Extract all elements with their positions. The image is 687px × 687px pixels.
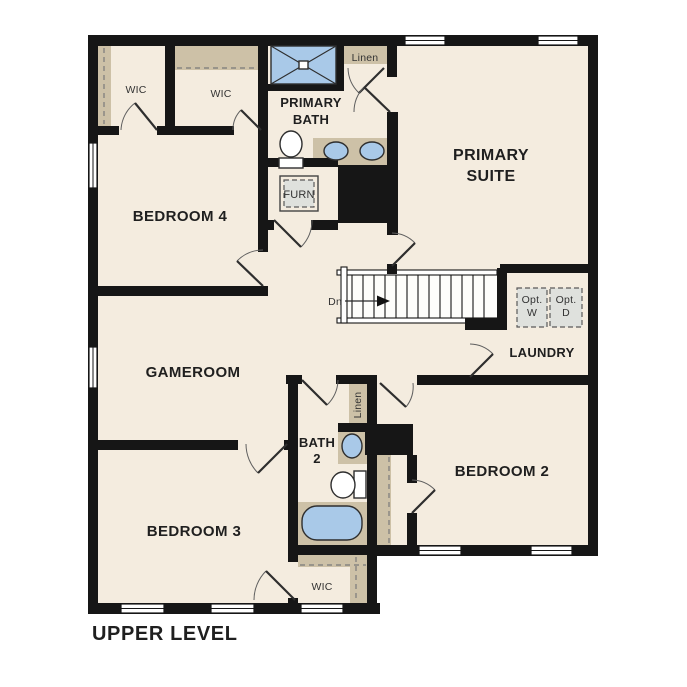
primary-bath-label-line1: PRIMARY <box>280 95 342 110</box>
opt-washer-label-line2: W <box>527 307 537 319</box>
shower-icon <box>271 46 336 84</box>
primary-suite-label-line1: PRIMARY <box>453 147 529 164</box>
wic-bedroom3-label: WIC <box>311 581 332 593</box>
stairs-down-label: Dn <box>328 296 342 308</box>
floor-plan-drawing: WIC WIC Linen PRIMARY BATH PRIMARY SUITE… <box>0 0 687 687</box>
sink-icon <box>360 142 384 160</box>
window <box>89 143 97 188</box>
sink-icon <box>342 434 362 458</box>
stair-newel <box>341 267 347 323</box>
gameroom-label: GAMEROOM <box>146 364 241 381</box>
toilet-icon <box>331 471 366 498</box>
chase-primary <box>338 165 390 223</box>
chase-bath2 <box>365 424 413 455</box>
floor-plan-upper-level: WIC WIC Linen PRIMARY BATH PRIMARY SUITE… <box>0 0 687 687</box>
window <box>301 604 343 613</box>
opt-dryer-label-line2: D <box>562 307 570 319</box>
plan-title: UPPER LEVEL <box>92 623 238 645</box>
window <box>419 546 461 555</box>
wic-left-label: WIC <box>125 84 146 96</box>
linen-bath2-label: Linen <box>352 392 364 419</box>
window <box>538 36 578 45</box>
wic-bedroom3-shelving-right <box>350 555 367 603</box>
bath2-label-line1: BATH <box>299 435 335 450</box>
sink-icon <box>324 142 348 160</box>
window <box>89 347 97 388</box>
wic-bedroom4-shelving <box>175 46 258 70</box>
window <box>121 604 164 613</box>
linen-primary-label: Linen <box>352 52 379 64</box>
bedroom4-label: BEDROOM 4 <box>133 208 228 225</box>
primary-bath-label-line2: BATH <box>293 112 329 127</box>
bath2-label-line2: 2 <box>313 451 321 466</box>
stair-rail-top <box>337 270 497 275</box>
bathtub-icon <box>302 506 362 540</box>
bedroom3-label: BEDROOM 3 <box>147 523 241 540</box>
laundry-label: LAUNDRY <box>509 345 574 360</box>
window <box>405 36 445 45</box>
opt-dryer-label-line1: Opt. <box>556 294 577 306</box>
bedroom2-label: BEDROOM 2 <box>455 463 549 480</box>
window <box>531 546 572 555</box>
furnace-label: FURN <box>283 189 314 201</box>
toilet-icon <box>279 131 303 168</box>
primary-suite-label-line2: SUITE <box>466 168 515 185</box>
window <box>211 604 254 613</box>
staircase <box>337 267 497 323</box>
opt-washer-label-line1: Opt. <box>522 294 543 306</box>
wic-bedroom4-label: WIC <box>210 88 231 100</box>
